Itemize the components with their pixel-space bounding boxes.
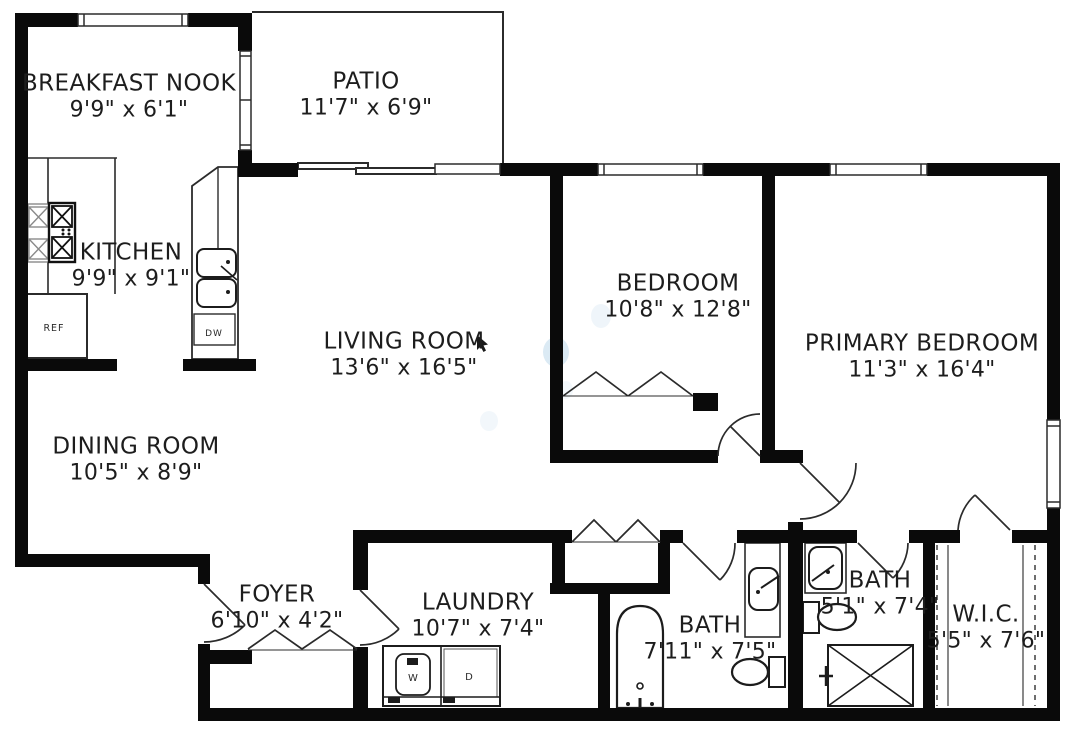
hall-closet-bifold [572,520,660,542]
room-label-laundry: LAUNDRY 10'7" x 7'4" [412,589,545,642]
refrigerator-icon: REF [22,294,87,358]
shower-icon [819,645,913,706]
window-primary-top [830,164,927,175]
room-dimensions: 5'5" x 7'6" [927,629,1046,655]
room-dimensions: 10'7" x 7'4" [412,617,545,643]
dryer-icon: D [465,672,473,683]
stove-icon [28,203,75,262]
room-name: BATH [821,567,940,594]
room-label-bedroom: BEDROOM 10'8" x 12'8" [604,270,751,323]
room-dimensions: 13'6" x 16'5" [324,356,485,382]
window-breakfast-nook [78,14,188,26]
floor-plan-page: REF DW W D [0,0,1074,729]
room-dimensions: 11'7" x 6'9" [300,96,433,122]
watermark-smudges [480,304,611,431]
room-name: DINING ROOM [52,433,219,460]
room-label-wic: W.I.C. 5'5" x 7'6" [927,601,1046,654]
room-dimensions: 10'8" x 12'8" [604,298,751,324]
svg-text:DW: DW [205,329,223,339]
window-primary-side [1047,420,1060,508]
main-bath-door [683,543,735,580]
laundry-fixtures: W D [383,646,500,706]
room-name: W.I.C. [927,601,1046,628]
room-label-foyer: FOYER 6'10" x 4'2" [211,581,344,634]
room-dimensions: 11'3" x 16'4" [805,358,1039,384]
room-label-kitchen: KITCHEN 9'9" x 9'1" [72,239,191,292]
room-label-bath-ensuite: BATH 5'1" x 7'4" [821,567,940,620]
bedroom-closet-bifold [563,372,693,396]
room-dimensions: 6'10" x 4'2" [211,609,344,635]
room-dimensions: 10'5" x 8'9" [52,461,219,487]
kitchen-counter: DW [192,167,238,359]
window-living-room [435,164,500,174]
room-name: FOYER [211,581,344,608]
window-nook-patio [240,51,251,150]
svg-text:W: W [408,673,418,684]
room-name: LAUNDRY [412,589,545,616]
room-label-living-room: LIVING ROOM 13'6" x 16'5" [324,328,485,381]
primary-bedroom-door [800,463,856,519]
laundry-door [360,590,399,645]
room-name: BREAKFAST NOOK [22,70,236,97]
room-dimensions: 9'9" x 6'1" [22,98,236,124]
washer-icon: W [396,654,430,695]
window-bedroom [598,164,703,175]
room-name: LIVING ROOM [324,328,485,355]
room-dimensions: 5'1" x 7'4" [821,595,940,621]
room-name: BATH [644,612,777,639]
dishwasher-icon: DW [194,314,235,345]
bedroom-door [718,414,760,456]
room-name: PRIMARY BEDROOM [805,330,1039,357]
room-name: BEDROOM [604,270,751,297]
room-name: KITCHEN [72,239,191,266]
room-dimensions: 7'11" x 7'5" [644,640,777,666]
room-label-bath-main: BATH 7'11" x 7'5" [644,612,777,665]
room-dimensions: 9'9" x 9'1" [72,267,191,293]
room-label-patio: PATIO 11'7" x 6'9" [300,68,433,121]
room-label-dining-room: DINING ROOM 10'5" x 8'9" [52,433,219,486]
svg-text:REF: REF [43,323,64,334]
room-label-primary-bedroom: PRIMARY BEDROOM 11'3" x 16'4" [805,330,1039,383]
svg-text:D: D [465,672,473,683]
room-name: PATIO [300,68,433,95]
wic-door [958,495,1010,530]
room-label-breakfast-nook: BREAKFAST NOOK 9'9" x 6'1" [22,70,236,123]
